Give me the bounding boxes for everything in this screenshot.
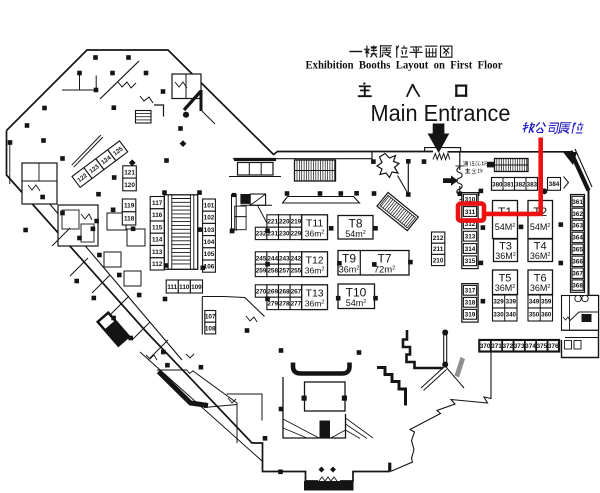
svg-text:373: 373 — [514, 343, 525, 350]
svg-text:36M2: 36M2 — [530, 283, 551, 293]
svg-text:330: 330 — [493, 312, 504, 319]
svg-text:384: 384 — [549, 181, 560, 188]
svg-text:54M2: 54M2 — [530, 222, 551, 232]
svg-text:270: 270 — [256, 288, 267, 295]
svg-text:105: 105 — [204, 251, 215, 258]
svg-text:36m2: 36m2 — [339, 265, 360, 275]
svg-text:107: 107 — [205, 314, 216, 321]
svg-text:362: 362 — [572, 211, 583, 218]
svg-text:54m2: 54m2 — [346, 298, 367, 308]
svg-text:314: 314 — [465, 246, 476, 253]
svg-text:242: 242 — [291, 255, 302, 262]
svg-text:117: 117 — [152, 200, 163, 207]
svg-text:383: 383 — [527, 182, 538, 189]
svg-text:363: 363 — [572, 223, 583, 230]
svg-text:119: 119 — [124, 203, 135, 210]
svg-text:374: 374 — [525, 343, 536, 350]
svg-text:319: 319 — [465, 312, 476, 319]
svg-text:210: 210 — [433, 257, 444, 264]
svg-text:230: 230 — [279, 231, 290, 238]
svg-text:258: 258 — [267, 268, 278, 275]
svg-text:329: 329 — [493, 299, 504, 306]
svg-text:115: 115 — [152, 224, 163, 231]
svg-text:255: 255 — [291, 268, 302, 275]
svg-text:313: 313 — [465, 234, 476, 241]
svg-text:244: 244 — [267, 255, 278, 262]
svg-text:367: 367 — [572, 271, 583, 278]
svg-text:365: 365 — [572, 247, 583, 254]
svg-text:340: 340 — [506, 312, 517, 319]
svg-text:220: 220 — [279, 218, 290, 225]
svg-text:229: 229 — [291, 231, 302, 238]
svg-text:54m2: 54m2 — [345, 229, 366, 239]
svg-text:339: 339 — [506, 299, 517, 306]
svg-text:108: 108 — [205, 325, 216, 332]
svg-text:54M2: 54M2 — [495, 222, 516, 232]
svg-text:112: 112 — [152, 261, 163, 268]
svg-text:375: 375 — [536, 343, 547, 350]
svg-text:211: 211 — [433, 246, 444, 253]
svg-text:315: 315 — [465, 258, 476, 265]
svg-text:259: 259 — [256, 268, 267, 275]
svg-text:Main Entrance: Main Entrance — [371, 100, 511, 126]
svg-text:111: 111 — [167, 284, 177, 291]
svg-text:36M2: 36M2 — [495, 283, 516, 293]
svg-text:311: 311 — [465, 209, 476, 216]
svg-text:278: 278 — [279, 301, 290, 308]
svg-text:104: 104 — [204, 239, 215, 246]
svg-text:120: 120 — [124, 182, 135, 189]
svg-text:380: 380 — [492, 182, 503, 189]
svg-text:381: 381 — [504, 182, 515, 189]
svg-text:245: 245 — [256, 255, 267, 262]
svg-text:221: 221 — [267, 218, 278, 225]
svg-text:72m2: 72m2 — [374, 265, 396, 276]
svg-text:101: 101 — [204, 202, 215, 209]
svg-text:243: 243 — [279, 255, 290, 262]
svg-text:219: 219 — [291, 218, 302, 225]
svg-text:121: 121 — [124, 169, 135, 176]
svg-text:113: 113 — [152, 249, 163, 256]
svg-text:36M2: 36M2 — [495, 251, 516, 261]
svg-text:118: 118 — [124, 216, 135, 223]
svg-text:106: 106 — [204, 263, 215, 270]
svg-text:370: 370 — [480, 343, 491, 350]
svg-text:T7: T7 — [377, 252, 391, 266]
svg-text:372: 372 — [502, 343, 513, 350]
svg-text:371: 371 — [491, 343, 502, 350]
svg-text:376: 376 — [548, 343, 559, 350]
svg-text:318: 318 — [465, 300, 476, 307]
svg-text:364: 364 — [572, 235, 583, 242]
svg-text:361: 361 — [572, 199, 583, 206]
svg-text:110: 110 — [179, 284, 190, 291]
svg-text:350: 350 — [529, 312, 540, 319]
svg-text:279: 279 — [267, 301, 278, 308]
svg-text:257: 257 — [279, 268, 290, 275]
svg-text:366: 366 — [572, 259, 583, 266]
svg-text:116: 116 — [152, 212, 163, 219]
svg-text:267: 267 — [291, 288, 302, 295]
svg-text:269: 269 — [267, 288, 278, 295]
svg-text:349: 349 — [529, 299, 540, 306]
svg-text:277: 277 — [291, 301, 302, 308]
svg-text:360: 360 — [541, 312, 552, 319]
svg-text:382: 382 — [515, 182, 526, 189]
svg-text:359: 359 — [541, 299, 552, 306]
svg-text:114: 114 — [152, 237, 163, 244]
svg-text:368: 368 — [572, 283, 583, 290]
svg-text:109: 109 — [191, 284, 202, 291]
svg-text:102: 102 — [204, 215, 215, 222]
svg-text:317: 317 — [465, 288, 476, 295]
svg-text:268: 268 — [279, 288, 290, 295]
svg-text:103: 103 — [204, 227, 215, 234]
svg-text:T9: T9 — [342, 252, 356, 266]
svg-text:36M2: 36M2 — [530, 251, 551, 261]
svg-text:212: 212 — [433, 235, 444, 242]
svg-text:Exhibition Booths Layout on: Exhibition Booths Layout on First Floor — [306, 60, 503, 72]
